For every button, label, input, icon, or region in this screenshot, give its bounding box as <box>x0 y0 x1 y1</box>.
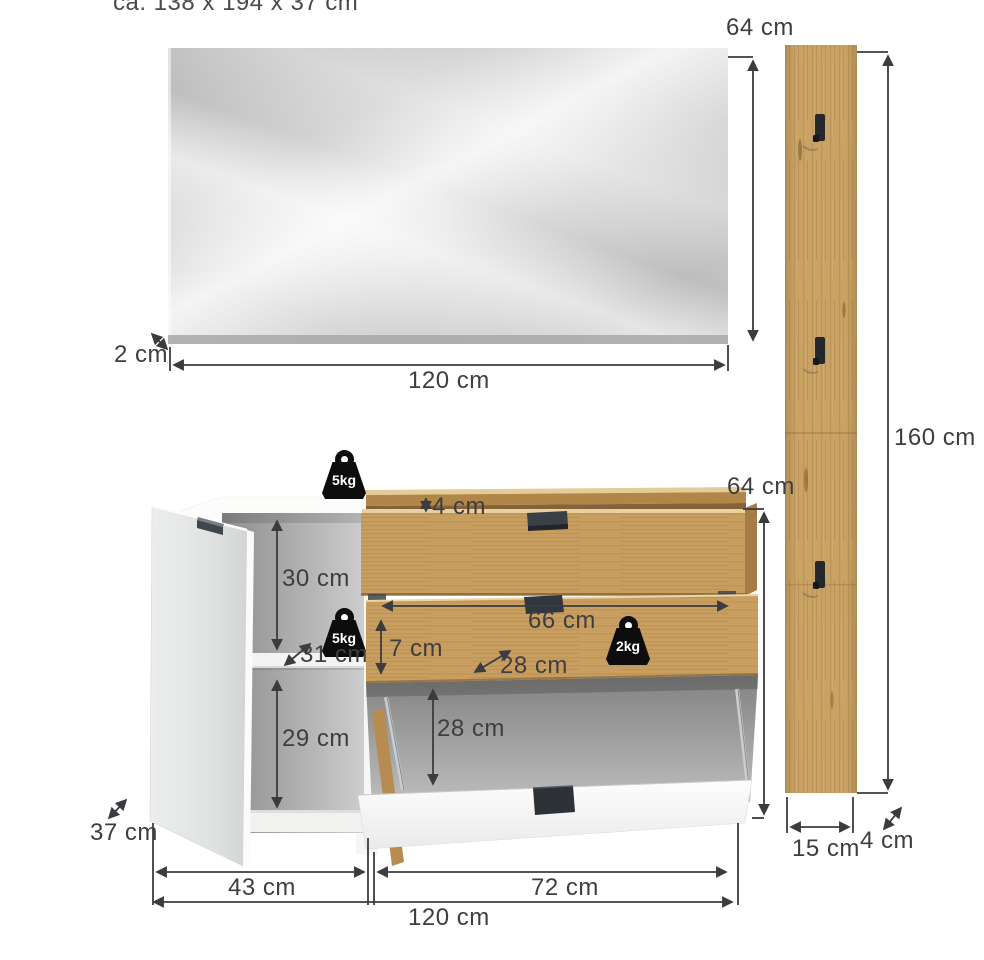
flap-section-width-label: 72 cm <box>531 874 599 902</box>
max-load-top-weight: 5kg <box>322 450 366 499</box>
total-width-label: 120 cm <box>408 904 490 932</box>
upper-compartment-label: 30 cm <box>282 565 350 593</box>
flap-opening-label: 28 cm <box>437 715 505 743</box>
mirror-thickness-label: 2 cm <box>114 341 168 369</box>
overall-size-text: ca. 138 x 194 x 37 cm <box>113 0 358 17</box>
panel-height-label: 160 cm <box>894 424 976 452</box>
shelf-depth-label: 31 cm <box>300 641 368 669</box>
lower-compartment-label: 29 cm <box>282 725 350 753</box>
cabinet-depth-label: 37 cm <box>90 819 158 847</box>
panel-depth-label: 4 cm <box>860 827 914 855</box>
flap-width-label: 66 cm <box>528 607 596 635</box>
door-width-label: 43 cm <box>228 874 296 902</box>
weight-label: 5kg <box>322 462 366 499</box>
dimension-lines <box>0 0 984 960</box>
cabinet-depth-arrow <box>109 800 126 818</box>
mirror-height-label: 64 cm <box>726 14 794 42</box>
panel-depth-arrow <box>884 808 901 829</box>
panel-width-label: 15 cm <box>792 835 860 863</box>
weight-label: 2kg <box>606 628 650 665</box>
max-load-flap-weight: 2kg <box>606 616 650 665</box>
cabinet-height-label: 64 cm <box>727 473 795 501</box>
furniture-dimension-diagram: { "header": { "overall_size": "ca. 138 x… <box>0 0 984 960</box>
box-rim-label: 4 cm <box>432 493 486 521</box>
mirror-width-label: 120 cm <box>408 367 490 395</box>
flap-depth-label: 28 cm <box>500 652 568 680</box>
flap-front-label: 7 cm <box>389 635 443 663</box>
